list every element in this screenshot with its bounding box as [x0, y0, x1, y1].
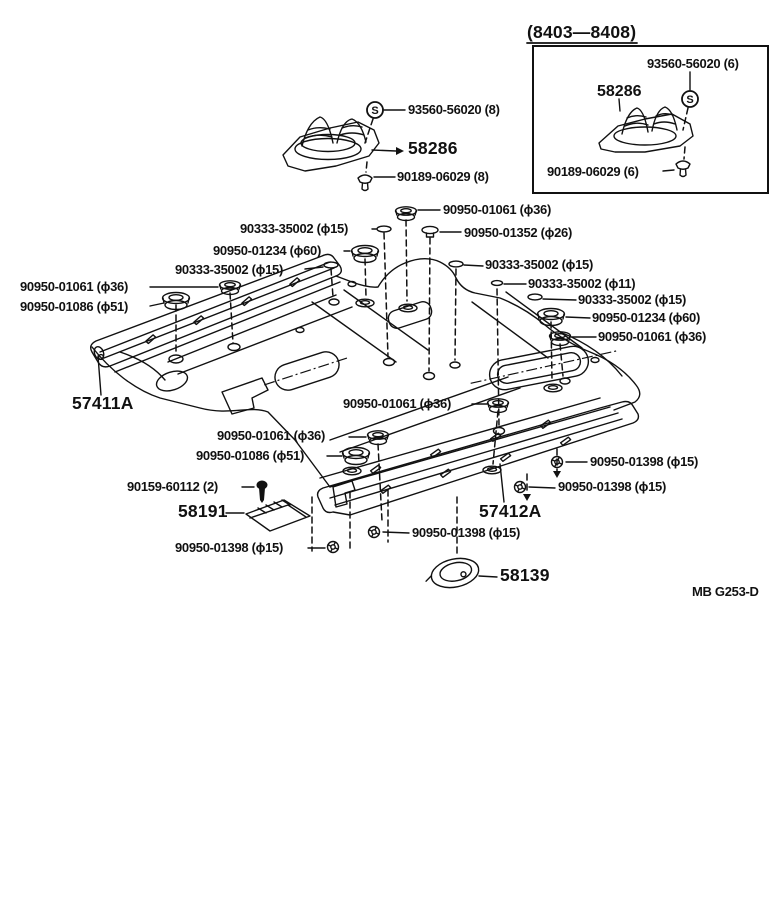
plug36-top-label: 90950-01061 (ϕ36) [443, 202, 551, 217]
bottom-parts: 90159-60112 (2) 58191 90950-01398 (ϕ15) … [127, 454, 698, 593]
svg-text:S: S [686, 94, 693, 106]
grommet60-r-label: 90950-01234 (ϕ60) [592, 310, 700, 325]
grommet-36-mid-left-icon [368, 431, 389, 445]
cover-label: 58139 [500, 565, 550, 585]
parts-catalog-page: (8403—8408) 93560-56020 (6) S 58286 9018… [0, 0, 784, 922]
s-symbol-icon: S [367, 102, 383, 118]
plug-1398-r2-icon [515, 482, 526, 493]
cover-58139 [423, 554, 482, 593]
washer15-b-label: 90333-35002 (ϕ15) [175, 262, 283, 277]
washer15-c-label: 90333-35002 (ϕ15) [485, 257, 593, 272]
washer-15-c-icon [449, 261, 463, 267]
grommet36-mid-r-label: 90950-01061 (ϕ36) [343, 396, 451, 411]
screw-58191-label: 90159-60112 (2) [127, 479, 218, 494]
boot-label: 58286 [408, 138, 458, 158]
screw-icon [257, 481, 268, 504]
plate-label: 58191 [178, 501, 228, 521]
plug1398-r1-label: 90950-01398 (ϕ15) [590, 454, 698, 469]
inset-panel: (8403—8408) 93560-56020 (6) S 58286 9018… [527, 22, 768, 193]
grommet60-l-label: 90950-01234 (ϕ60) [213, 243, 321, 258]
plug-1398-b-mid-icon [369, 527, 380, 538]
plug-26-icon [422, 226, 438, 237]
grommet51-l-label: 90950-01086 (ϕ51) [20, 299, 128, 314]
inset-period-label: (8403—8408) [527, 22, 636, 42]
shift-boot-assembly: S 93560-56020 (8) 58286 90189-06029 (8) [283, 102, 500, 191]
washer15-a-label: 90333-35002 (ϕ15) [240, 221, 348, 236]
washer15-d-label: 90333-35002 (ϕ15) [578, 292, 686, 307]
plug26-label: 90950-01352 (ϕ26) [464, 225, 572, 240]
footer-code: MB G253-D [692, 584, 759, 599]
boot-screw-label: 93560-56020 (8) [408, 102, 500, 117]
washer11-label: 90333-35002 (ϕ11) [528, 276, 635, 291]
plug1398-r2-label: 90950-01398 (ϕ15) [558, 479, 666, 494]
inset-s-symbol-icon: S [682, 91, 698, 107]
inset-screw-label: 93560-56020 (6) [647, 56, 739, 71]
sill-rh-label: 57412A [479, 501, 542, 521]
svg-text:S: S [371, 105, 378, 117]
exploded-fasteners: 90950-01061 (ϕ36) 90950-01352 (ϕ26) 9033… [20, 202, 706, 346]
grommet36-r-label: 90950-01061 (ϕ36) [598, 329, 706, 344]
washer-11-icon [492, 281, 503, 286]
inset-boot-label: 58286 [597, 83, 642, 100]
plug1398-b-left-label: 90950-01398 (ϕ15) [175, 540, 283, 555]
inset-shift-boot [599, 107, 693, 152]
inset-clip-label: 90189-06029 (6) [547, 164, 639, 179]
washer-15-a-icon [377, 226, 391, 232]
grommet36-mid-l-label: 90950-01061 (ϕ36) [217, 428, 325, 443]
boot-clip-label: 90189-06029 (8) [397, 169, 489, 184]
sill-lh-label: 57411A [72, 393, 134, 413]
grommet36-l-label: 90950-01061 (ϕ36) [20, 279, 128, 294]
plug-1398-b-left-icon [328, 542, 339, 553]
plate-58191 [246, 500, 310, 531]
pan-opening-left [260, 345, 354, 398]
plug1398-b-mid-label: 90950-01398 (ϕ15) [412, 525, 520, 540]
inset-clip-icon [676, 161, 690, 177]
grommet-36-top-icon [396, 207, 417, 221]
parts-diagram-canvas: (8403—8408) 93560-56020 (6) S 58286 9018… [0, 0, 784, 922]
boot-clip-icon [358, 175, 372, 191]
washer-15-d-icon [528, 294, 542, 300]
grommet51-mid-label: 90950-01086 (ϕ51) [196, 448, 304, 463]
shift-boot [283, 117, 379, 171]
mid-fasteners: 90950-01061 (ϕ36) 90950-01061 (ϕ36) 9095… [196, 396, 509, 465]
